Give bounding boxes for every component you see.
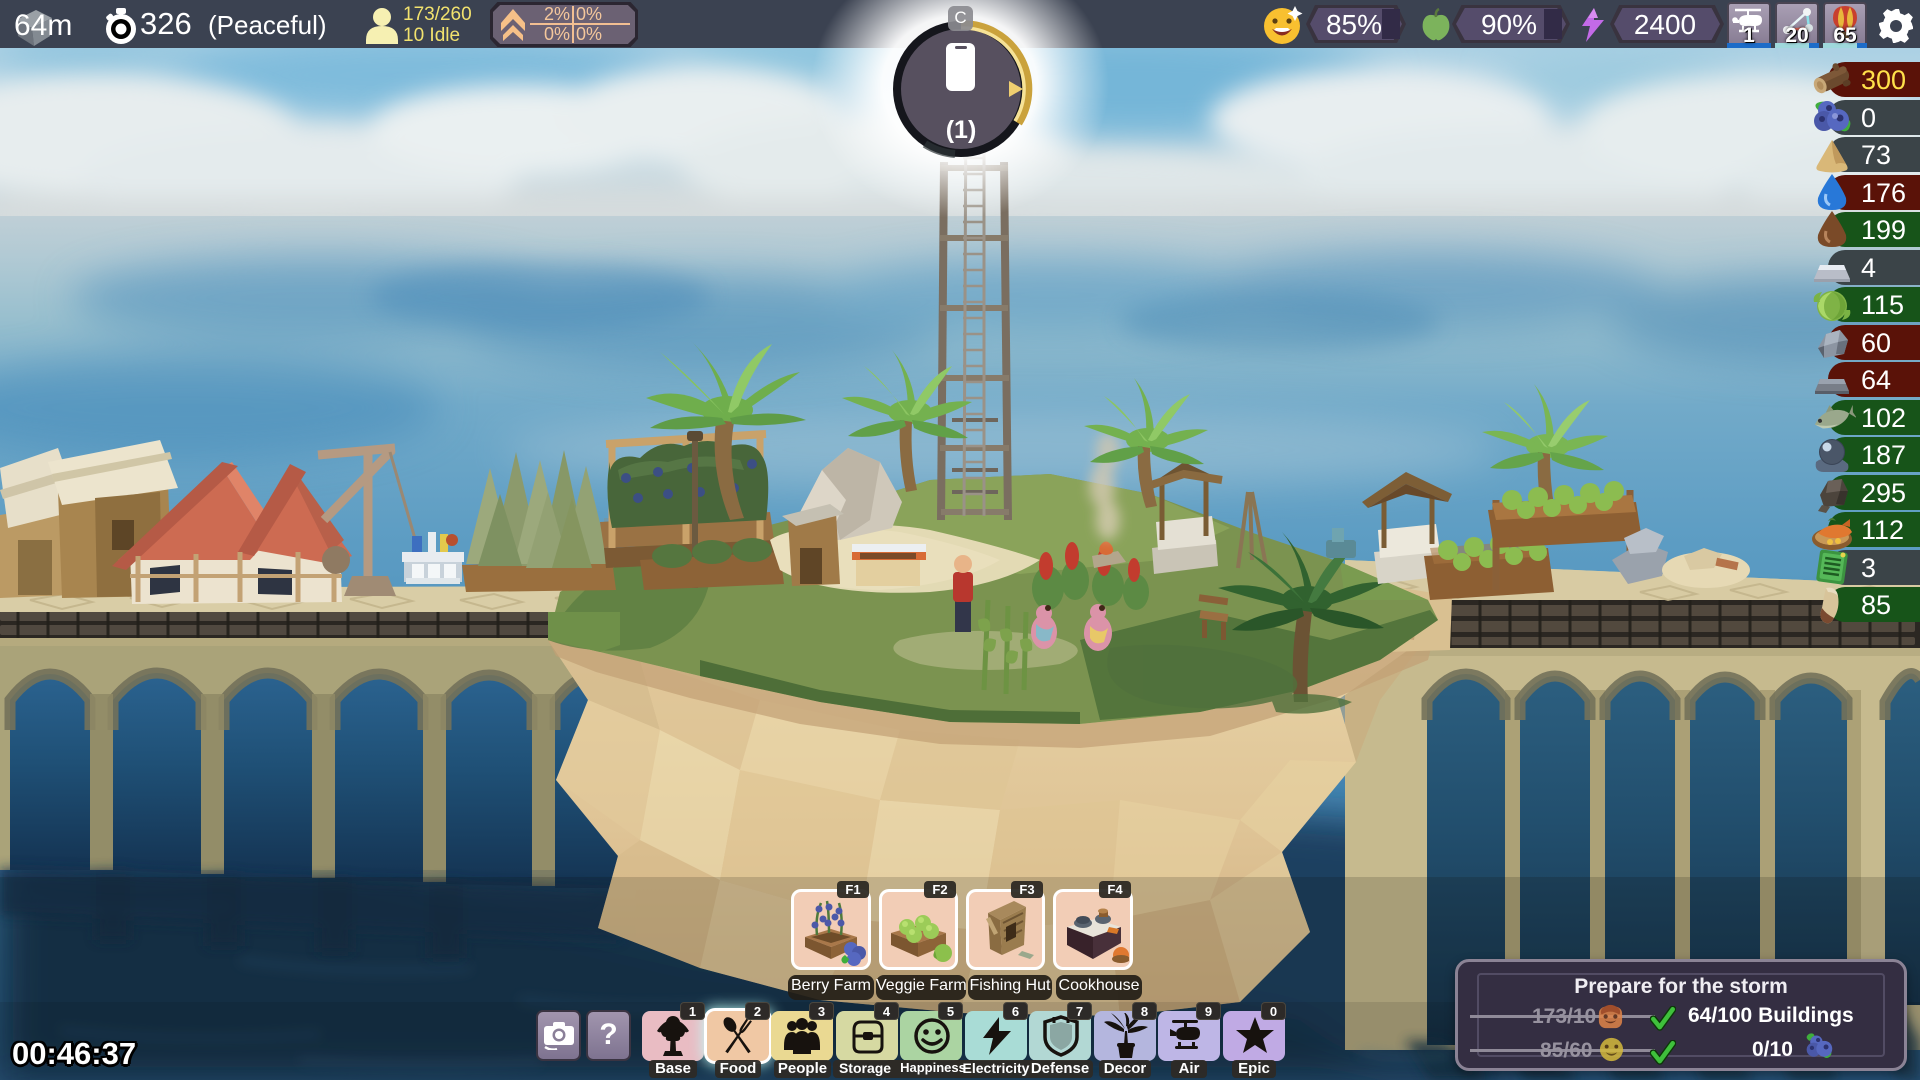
svg-text:(1): (1) bbox=[946, 116, 977, 144]
